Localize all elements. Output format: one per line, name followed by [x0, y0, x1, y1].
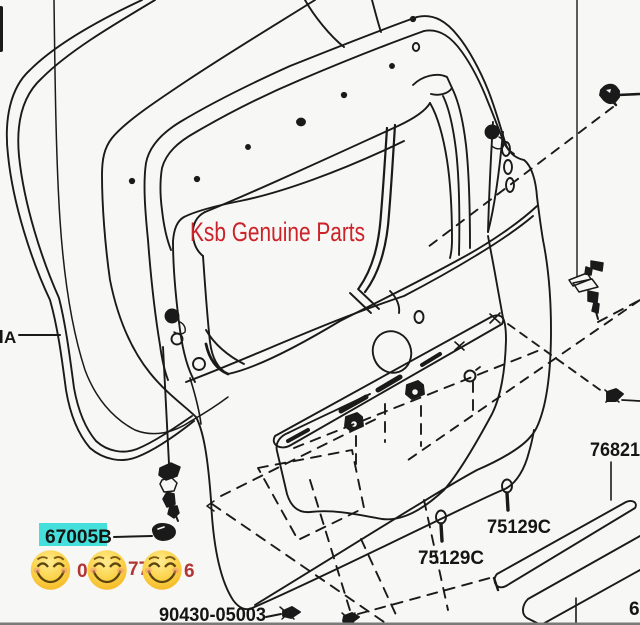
svg-text:Ksb Genuine Parts: Ksb Genuine Parts [190, 217, 365, 247]
svg-text:75129C: 75129C [418, 548, 484, 569]
svg-text:76821: 76821 [590, 440, 640, 461]
svg-text:6: 6 [629, 599, 640, 620]
svg-text:75129C: 75129C [487, 517, 551, 538]
svg-text:67005B: 67005B [45, 527, 112, 548]
svg-text:0: 0 [77, 561, 88, 582]
svg-text:90430-05003: 90430-05003 [159, 605, 266, 625]
svg-text:6: 6 [184, 561, 195, 582]
svg-text:A: A [4, 328, 16, 347]
